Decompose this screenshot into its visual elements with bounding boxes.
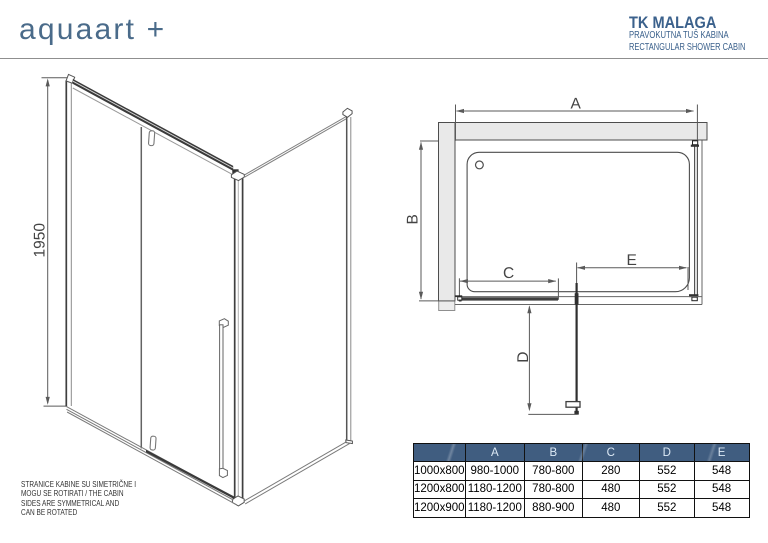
svg-text:D: D	[515, 352, 532, 363]
svg-text:1950: 1950	[32, 223, 49, 258]
svg-text:A: A	[571, 96, 582, 113]
svg-text:E: E	[627, 252, 637, 269]
svg-text:B: B	[405, 214, 422, 224]
svg-text:C: C	[503, 265, 514, 282]
